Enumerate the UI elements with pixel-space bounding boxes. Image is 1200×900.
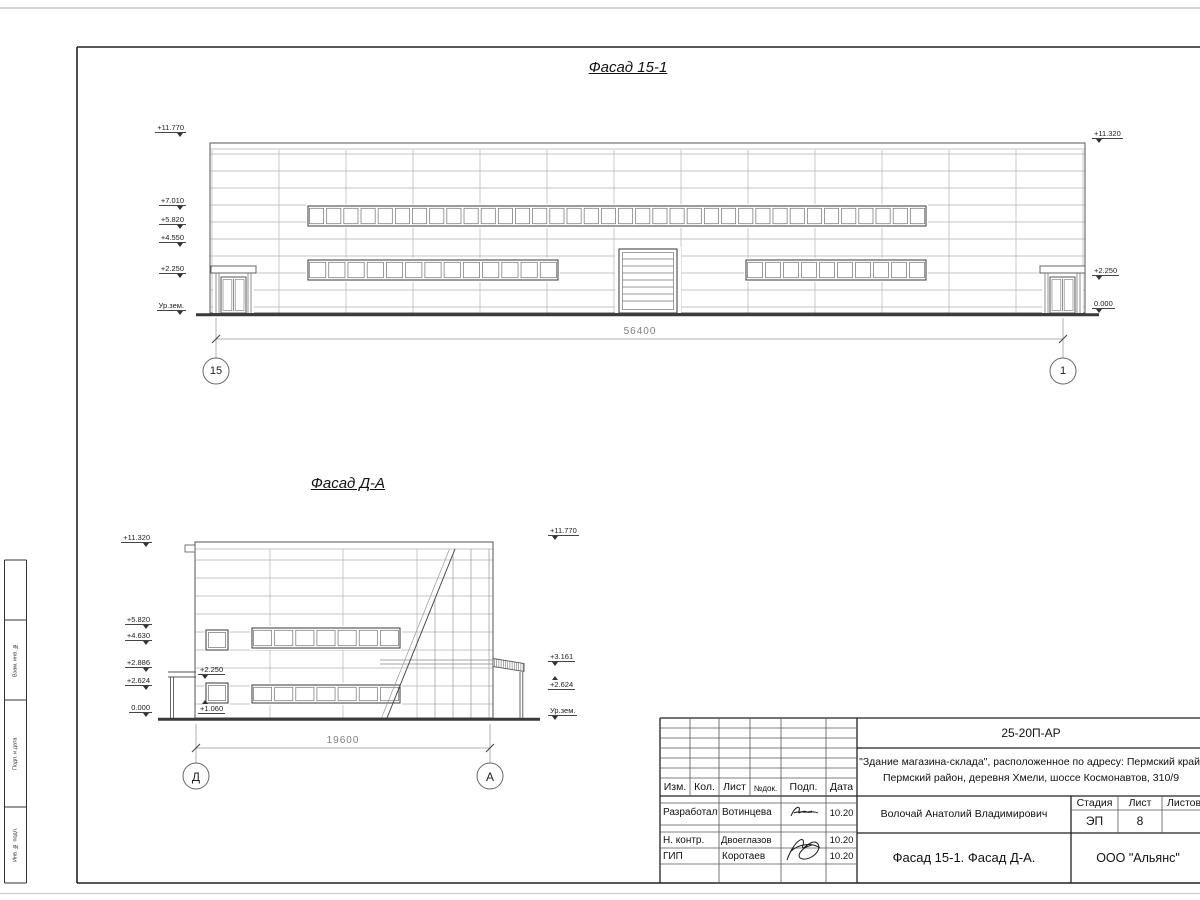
elevation-mark: +4.550 [140, 233, 186, 243]
elevation-flag-icon [1096, 139, 1102, 143]
elevation-flag-icon [177, 133, 183, 137]
facade1-axis-right: 1 [1050, 365, 1076, 377]
project-address-line1: "Здание магазина-склада", расположенное … [859, 756, 1200, 768]
elevation-flag-icon [177, 206, 183, 210]
elevation-mark: 0.000 [1092, 299, 1138, 309]
elevation-flag-icon [177, 311, 183, 315]
sheet-number: 8 [1118, 814, 1162, 828]
elevation-flag-icon [143, 543, 149, 547]
gip-name: Коротаев [722, 851, 780, 862]
elevation-mark: Ур.зем. [140, 301, 186, 311]
facade1-axis-left: 15 [203, 365, 229, 377]
elevation-mark: +4.630 [106, 631, 152, 641]
elevation-mark: +2.250 [140, 264, 186, 274]
elevation-mark: +11.320 [106, 533, 152, 543]
ncontr-date: 10.20 [826, 835, 857, 846]
elevation-flag-icon [143, 713, 149, 717]
facade2-axis-right: А [477, 770, 503, 784]
project-address-line2: Пермский район, деревня Хмели, шоссе Кос… [859, 772, 1200, 784]
elevation-flag-icon [202, 700, 208, 704]
facade1-dimension: 56400 [540, 326, 740, 337]
document-code: 25-20П-АР [857, 726, 1200, 740]
elevation-flag-icon [143, 625, 149, 629]
elevation-mark: +7.010 [140, 196, 186, 206]
company-name: ООО "Альянс" [1073, 851, 1200, 865]
facade2-axis-left: Д [183, 770, 209, 784]
titleblock-col-ndok: №док. [750, 784, 781, 793]
elevation-mark: +1.060 [198, 704, 234, 714]
side-stamp-cell: Подп. и дата [5, 702, 26, 805]
sheets-total-label: Листов [1162, 797, 1200, 809]
sheet-label: Лист [1118, 797, 1162, 809]
facade1-title: Фасад 15-1 [518, 59, 738, 76]
ncontr-name: Двоеглазов [721, 835, 781, 846]
facade2-title: Фасад Д-А [238, 475, 458, 492]
elevation-mark: +2.250 [198, 665, 234, 675]
elevation-mark: +2.886 [106, 658, 152, 668]
elevation-flag-icon [177, 274, 183, 278]
chief-name: Волочай Анатолий Владимирович [859, 808, 1069, 820]
elevation-mark: +2.624 [106, 676, 152, 686]
elevation-mark: +5.820 [140, 215, 186, 225]
gip-label: ГИП [663, 851, 718, 862]
stage-label: Стадия [1071, 797, 1118, 809]
facade2-dimension: 19600 [243, 735, 443, 746]
elevation-mark: +2.250 [1092, 266, 1138, 276]
developed-label: Разработал [663, 807, 718, 818]
elevation-mark: +3.161 [548, 652, 594, 662]
titleblock-col-kol: Кол. [690, 781, 719, 793]
elevation-flag-icon [1096, 309, 1102, 313]
drawing-sheet: Фасад 15-1 Фасад Д-А 56400 19600 15 1 Д … [0, 0, 1200, 900]
elevation-mark: Ур.зем. [548, 706, 594, 716]
elevation-mark: +11.320 [1092, 129, 1138, 139]
stage-value: ЭП [1071, 814, 1118, 828]
elevation-mark: +11.770 [548, 526, 594, 536]
drawing-name: Фасад 15-1. Фасад Д-А. [859, 850, 1069, 865]
elevation-flag-icon [552, 536, 558, 540]
elevation-flag-icon [143, 641, 149, 645]
titleblock-col-izm: Изм. [660, 781, 690, 793]
titleblock-col-data: Дата [826, 781, 857, 793]
elevation-flag-icon [177, 243, 183, 247]
gip-date: 10.20 [826, 851, 857, 862]
elevation-mark: +11.770 [140, 123, 186, 133]
side-stamp-cell: Взам. инв. № [5, 622, 26, 698]
developed-name: Вотинцева [722, 807, 780, 818]
elevation-flag-icon [552, 662, 558, 666]
elevation-mark: +5.820 [106, 615, 152, 625]
elevation-flag-icon [202, 675, 208, 679]
elevation-flag-icon [177, 225, 183, 229]
elevation-flag-icon [552, 716, 558, 720]
elevation-mark: +2.624 [548, 680, 594, 690]
titleblock-col-podp: Подп. [781, 781, 826, 793]
elevation-flag-icon [143, 686, 149, 690]
signature-gip [787, 840, 820, 860]
elevation-flag-icon [1096, 276, 1102, 280]
titleblock-col-list: Лист [719, 781, 750, 793]
elevation-flag-icon [552, 676, 558, 680]
ncontr-label: Н. контр. [663, 835, 718, 846]
elevation-mark: 0.000 [106, 703, 152, 713]
signature-developed [791, 807, 818, 816]
side-stamp-cell: Инв. № подл. [5, 809, 26, 881]
elevation-flag-icon [143, 668, 149, 672]
developed-date: 10.20 [826, 808, 857, 819]
